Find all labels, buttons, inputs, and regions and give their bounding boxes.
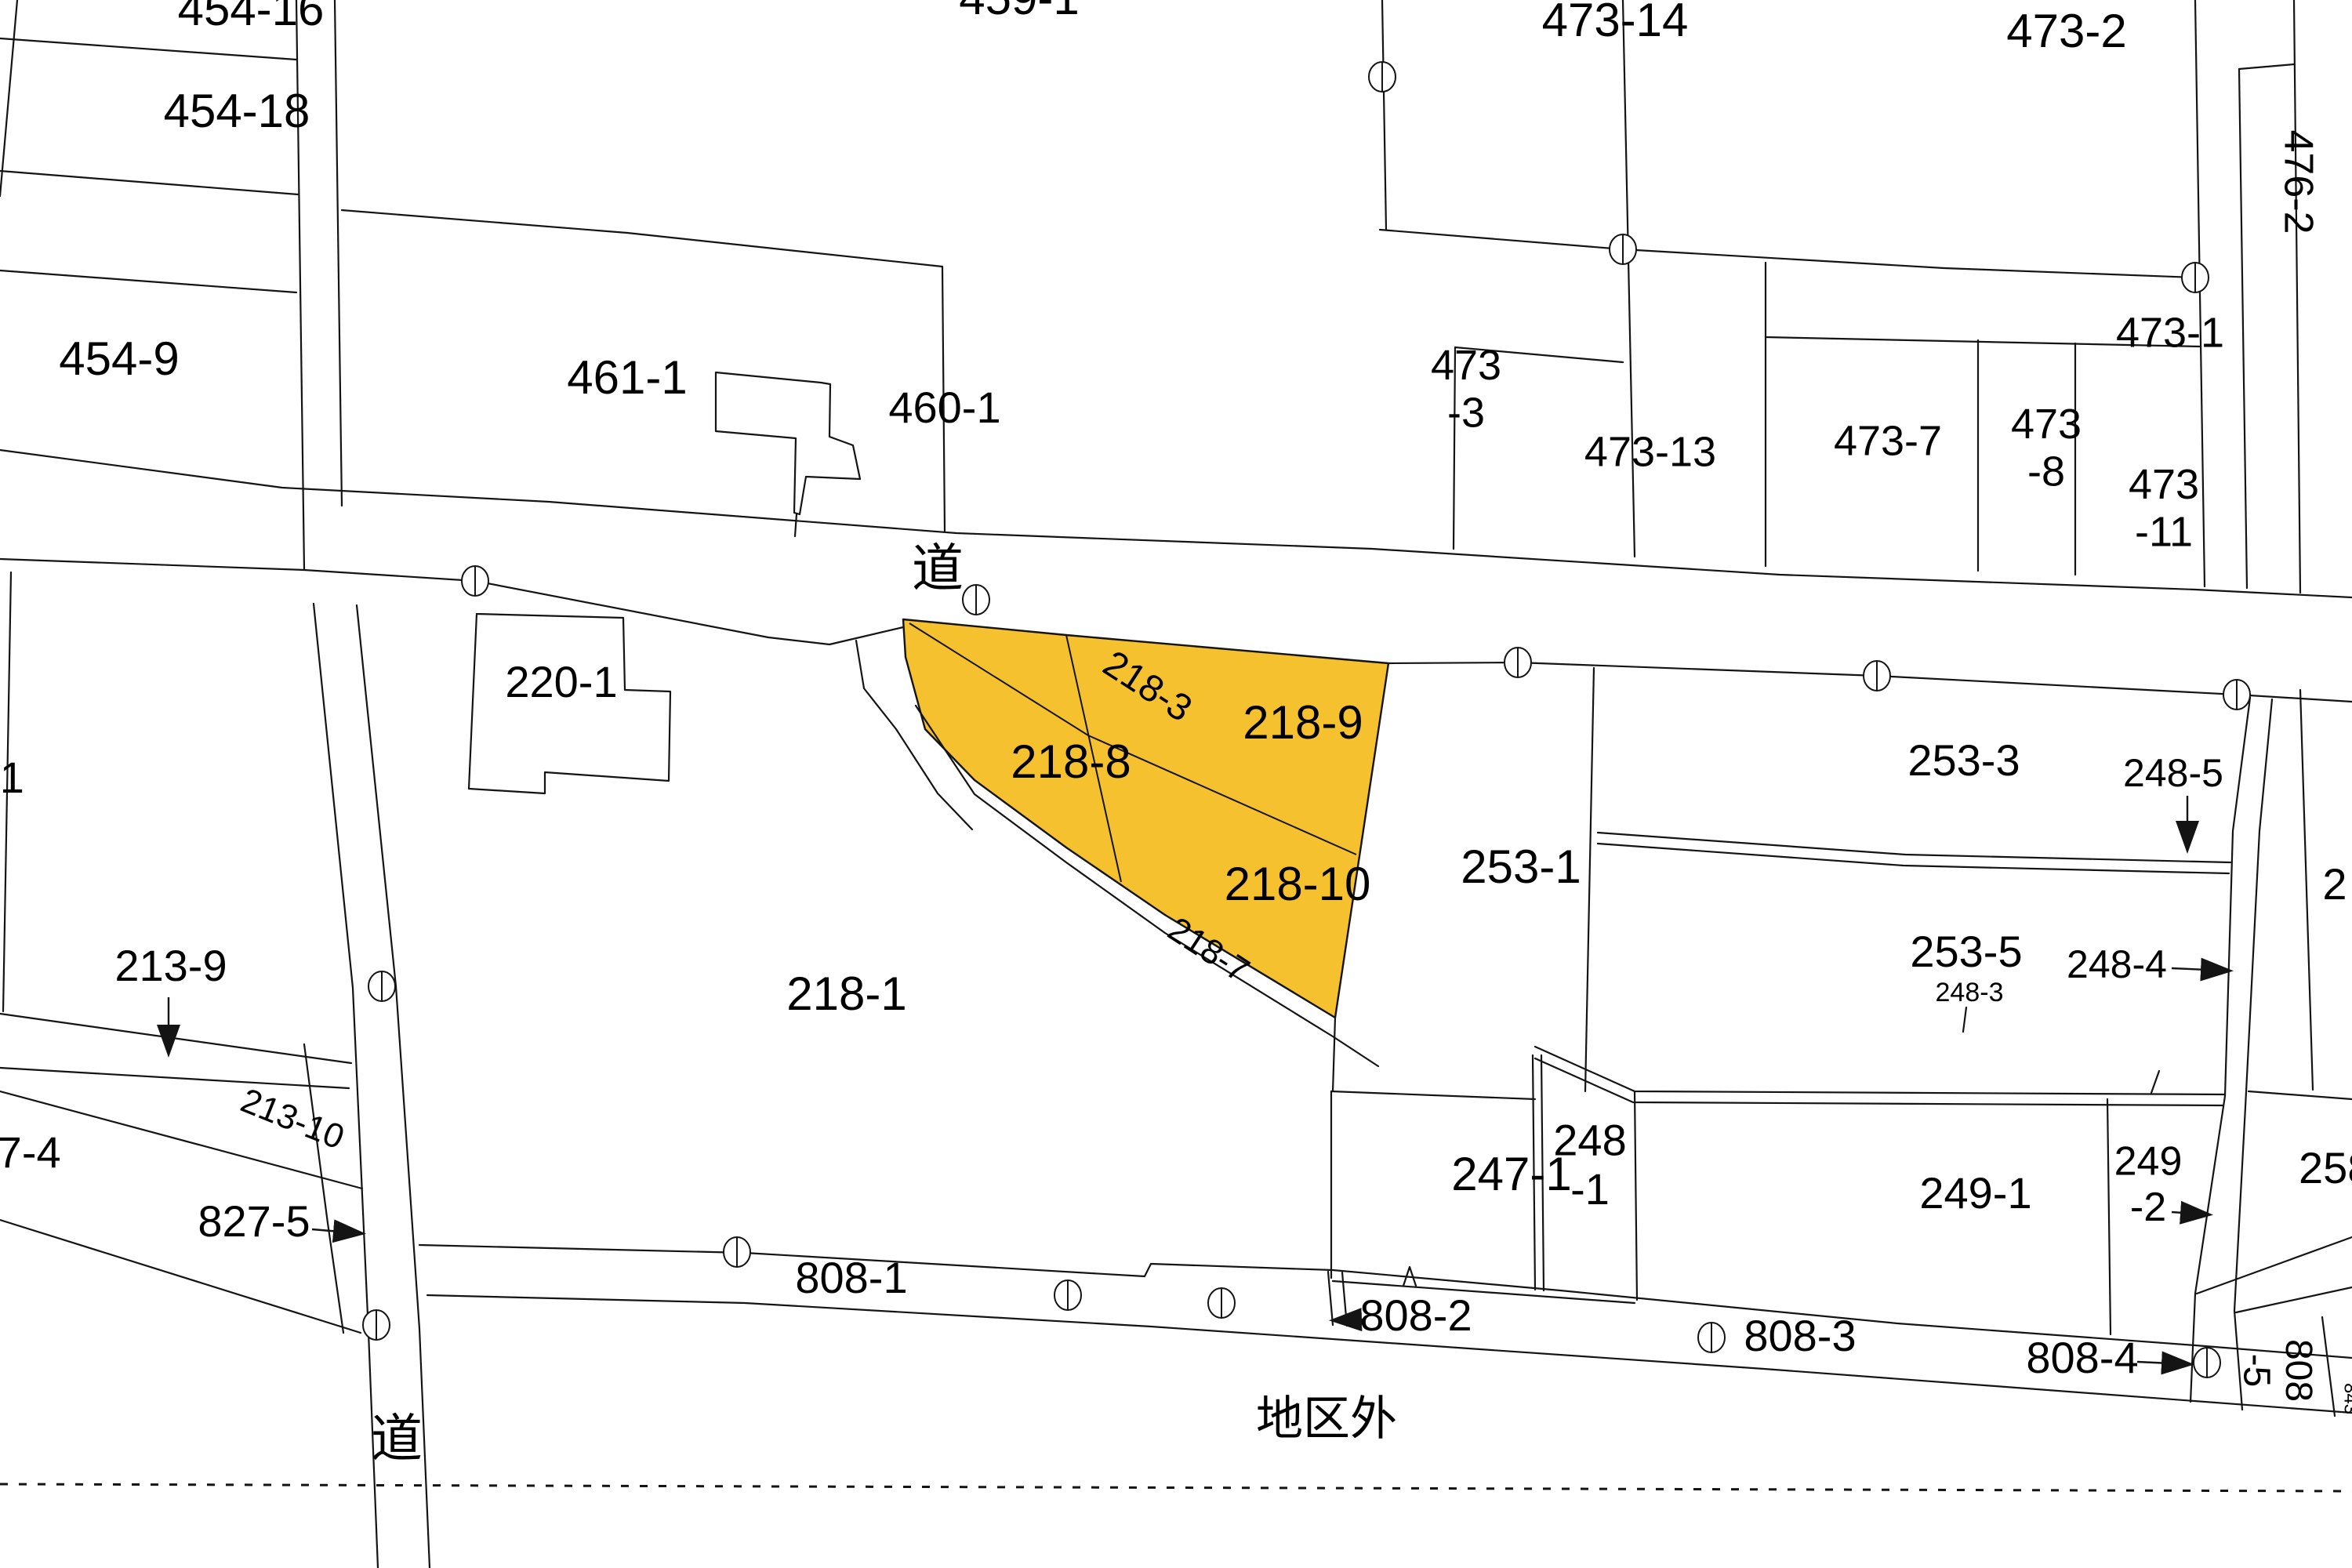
parcel-label-454-9: 454-9 — [59, 332, 179, 385]
parcel-label-text: 218-8 — [1011, 735, 1131, 788]
parcel-label-text: 473 — [2011, 401, 2082, 448]
parcel-label-text: 218-1 — [786, 967, 906, 1020]
parcel-label-text: -5 — [2235, 1354, 2277, 1388]
parcel-label-473-14: 473-14 — [1542, 0, 1689, 46]
parcel-label-808-3: 808-3 — [1744, 1311, 1856, 1360]
parcel-label-text: 220-1 — [505, 657, 617, 706]
parcel-label-808-1: 808-1 — [795, 1253, 907, 1302]
parcel-label-473-2: 473-2 — [2006, 5, 2126, 57]
parcel-label-218-1: 218-1 — [786, 967, 906, 1020]
parcel-label-459-1: 459-1 — [959, 0, 1079, 24]
parcel-label-road-bottom: 道 — [371, 1409, 423, 1467]
parcel-label-473-1: 473-1 — [2116, 309, 2224, 356]
parcel-label-text: -3 — [1447, 390, 1485, 437]
survey-marker-icon — [1698, 1323, 1725, 1352]
parcel-label-text: 213-9 — [114, 941, 227, 990]
parcel-label-text: 218-10 — [1225, 858, 1371, 910]
parcel-label-text: 253-3 — [1907, 735, 2020, 785]
parcel-label-text: 808 — [2278, 1339, 2319, 1402]
parcel-label-road-top: 道 — [912, 539, 964, 597]
parcel-label-808-2: 808-2 — [1359, 1290, 1472, 1340]
parcel-label-827-5: 827-5 — [198, 1196, 310, 1246]
parcel-label-248-5: 248-5 — [2123, 751, 2223, 795]
parcel-label-text: 248 — [1553, 1115, 1626, 1164]
parcel-label-text: -2 — [2130, 1185, 2166, 1230]
parcel-label-213-9: 213-9 — [114, 941, 227, 990]
parcel-label-text: 473-14 — [1542, 0, 1689, 46]
parcel-label-text: 248-4 — [2067, 942, 2167, 986]
parcel-label-249-1: 249-1 — [1919, 1168, 2031, 1218]
parcel-label-text: 253-5 — [1910, 927, 2022, 976]
survey-marker-icon — [963, 585, 989, 615]
parcel-label-text: 2 — [2322, 859, 2347, 909]
parcel-label-text: 454-16 — [178, 0, 325, 35]
parcel-label-258-: 258- — [2299, 1143, 2352, 1192]
parcel-label-text: 248-5 — [2123, 751, 2223, 795]
survey-marker-icon — [1610, 234, 1636, 264]
parcel-label-text: 808-3 — [1744, 1311, 1856, 1360]
parcel-label-text: 249 — [2114, 1139, 2183, 1185]
parcel-label-text: 808-1 — [795, 1253, 907, 1302]
parcel-label-827-4: 827-4 — [0, 1127, 61, 1177]
parcel-label-text: 459-1 — [959, 0, 1079, 24]
parcel-label-chikugai: 地区外 — [1256, 1392, 1397, 1445]
survey-marker-icon — [2223, 680, 2250, 710]
parcel-label-text: -11 — [2135, 509, 2193, 556]
parcel-label-473-7: 473-7 — [1834, 417, 1942, 464]
parcel-label-text: 460-1 — [888, 383, 1000, 432]
survey-marker-icon — [1504, 648, 1531, 677]
parcel-label-text: 473 — [2129, 461, 2199, 508]
parcel-label-843: 843 — [2340, 1383, 2352, 1414]
parcel-label-text: 808-2 — [1359, 1290, 1472, 1340]
survey-marker-icon — [2194, 1348, 2220, 1377]
parcel-label-253-3: 253-3 — [1907, 735, 2020, 785]
parcel-label-text: 地区外 — [1256, 1392, 1397, 1445]
parcel-label-473-13: 473-13 — [1584, 428, 1716, 475]
parcel-label-text: 道 — [912, 539, 964, 597]
parcel-label-text: 249-1 — [1919, 1168, 2031, 1218]
parcel-label-476-2: 476-2 — [2275, 130, 2321, 234]
cadastral-map-svg: 454-16454-18454-9461-1460-1459-1473-1447… — [0, 0, 2352, 1568]
parcel-label-text: 843 — [2340, 1383, 2352, 1414]
parcel-label-248-4: 248-4 — [2067, 942, 2167, 986]
parcel-label-text: 461-1 — [567, 351, 687, 404]
parcel-label-text: 473-2 — [2006, 5, 2126, 57]
survey-marker-icon — [724, 1237, 750, 1267]
parcel-label-2-edge: 2 — [2322, 859, 2347, 909]
survey-marker-icon — [1369, 62, 1396, 92]
parcel-label-text: 473-13 — [1584, 428, 1716, 475]
parcel-label-text: 道 — [371, 1409, 423, 1467]
parcel-label-text: 473-7 — [1834, 417, 1942, 464]
parcel-label-text: 258- — [2299, 1143, 2352, 1192]
parcel-label-text: 454-18 — [164, 85, 310, 137]
parcel-label-text: 454-9 — [59, 332, 179, 385]
survey-marker-icon — [363, 1310, 390, 1340]
survey-marker-icon — [1054, 1280, 1081, 1310]
parcel-label-808-4: 808-4 — [2026, 1333, 2138, 1382]
parcel-label-218-8: 218-8 — [1011, 735, 1131, 788]
survey-marker-icon — [2182, 263, 2209, 292]
parcel-label-text: 827-5 — [198, 1196, 310, 1246]
parcel-label-218-10: 218-10 — [1225, 858, 1371, 910]
parcel-label-text: 473 — [1431, 342, 1501, 389]
parcel-label-460-1: 460-1 — [888, 383, 1000, 432]
parcel-label-454-18: 454-18 — [164, 85, 310, 137]
survey-marker-icon — [368, 971, 395, 1001]
parcel-label-minus1-edge: -1 — [0, 753, 24, 802]
parcel-label-text: -1 — [1570, 1164, 1610, 1214]
survey-marker-icon — [1208, 1288, 1235, 1318]
parcel-label-253-5: 253-5 — [1910, 927, 2022, 976]
parcel-label-253-1: 253-1 — [1461, 840, 1581, 893]
parcel-label-454-16: 454-16 — [178, 0, 325, 35]
survey-marker-icon — [1864, 661, 1890, 691]
parcel-label-text: 808-4 — [2026, 1333, 2138, 1382]
parcel-label-text: 253-1 — [1461, 840, 1581, 893]
survey-marker-icon — [462, 566, 488, 596]
parcel-label-218-9: 218-9 — [1243, 696, 1363, 749]
parcel-label-461-1: 461-1 — [567, 351, 687, 404]
parcel-label-473-11: 473-11 — [2129, 461, 2199, 555]
parcel-label-220-1: 220-1 — [505, 657, 617, 706]
parcel-label-text: 473-1 — [2116, 309, 2224, 356]
parcel-label-text: 218-9 — [1243, 696, 1363, 749]
parcel-label-text: 827-4 — [0, 1127, 61, 1177]
parcel-label-text: -8 — [2027, 448, 2065, 495]
parcel-label-248-3: 248-3 — [1936, 978, 2004, 1007]
parcel-label-text: 248-3 — [1936, 978, 2004, 1007]
parcel-label-text: 476-2 — [2275, 130, 2321, 234]
cadastral-map-stage: 454-16454-18454-9461-1460-1459-1473-1447… — [0, 0, 2352, 1568]
parcel-label-text: -1 — [0, 753, 24, 802]
